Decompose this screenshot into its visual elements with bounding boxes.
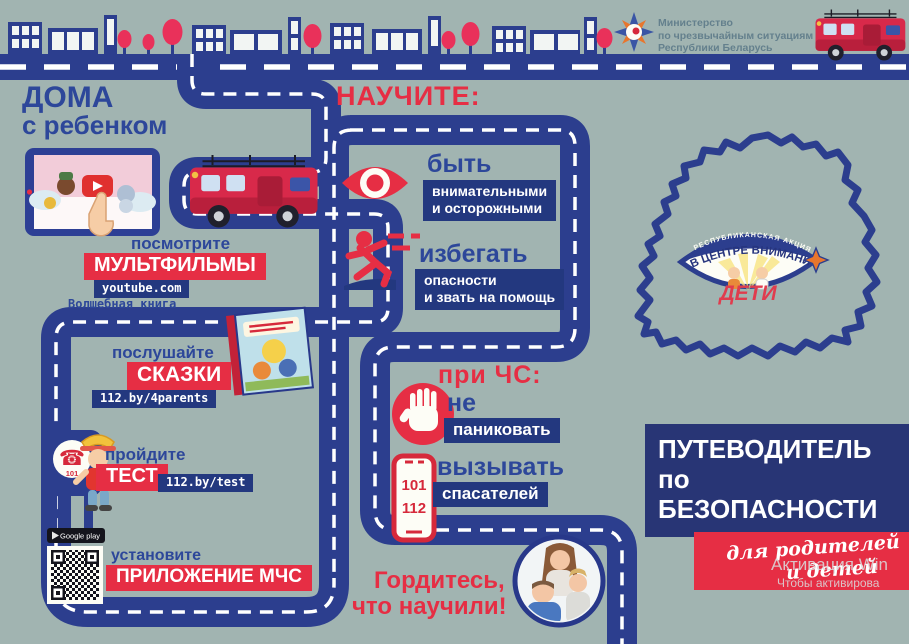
fire-truck-icon <box>816 10 906 61</box>
google-play-badge: Google play <box>47 528 105 543</box>
stop-hand-icon <box>392 383 454 445</box>
cartoon-tablet <box>25 148 160 236</box>
family-photo <box>515 537 603 626</box>
mchs-emblem-icon <box>610 8 658 56</box>
svg-text:Google play: Google play <box>60 532 100 541</box>
campaign-label: ДЕТИ <box>717 282 777 305</box>
sign-number: 101 <box>66 469 79 478</box>
fairy-tales-book <box>226 308 313 396</box>
safety-guide-poster: { "header": { "ministry_lines": ["Минист… <box>0 0 909 644</box>
poster-artwork: ☎ 101 Google play <box>0 0 909 644</box>
qr-code <box>47 546 103 604</box>
eye-icon <box>342 167 408 199</box>
emergency-phone-icon <box>394 456 434 540</box>
record-dot-icon <box>27 189 32 194</box>
city-skyline <box>8 15 613 54</box>
firefighter-kid-icon <box>76 435 118 511</box>
